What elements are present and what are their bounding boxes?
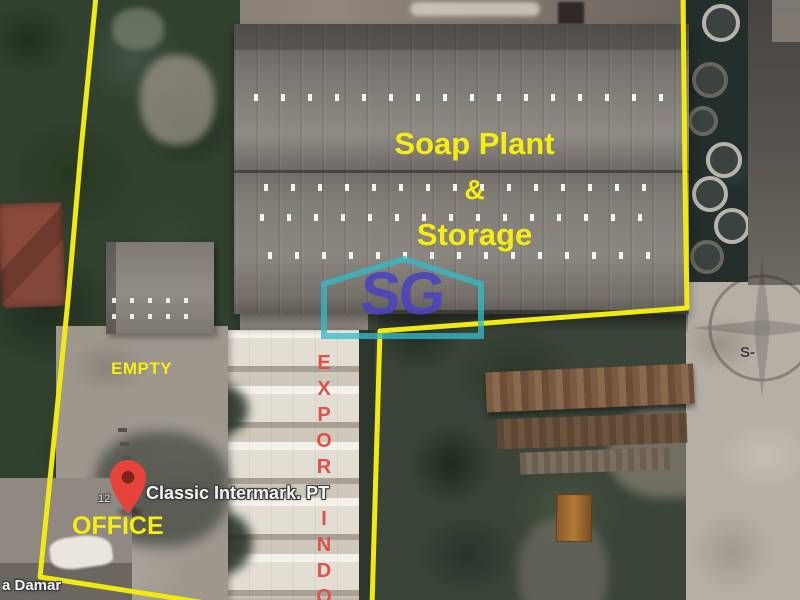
road-dark-patch (558, 2, 584, 24)
storage-tank (692, 62, 728, 98)
storage-tank (714, 208, 750, 244)
place-label[interactable]: Classic Intermark. PT (146, 483, 329, 504)
roof-band-right (748, 0, 800, 285)
sg-logo-watermark: SG (324, 264, 480, 324)
house-number-label: 12 (98, 493, 110, 505)
roof-ridge-line (234, 170, 689, 173)
trees-strip (359, 330, 375, 600)
roof-shading (234, 24, 689, 50)
storage-tank (702, 4, 740, 42)
yard-mark (120, 442, 129, 446)
label-ampersand: & (352, 176, 597, 204)
label-office: OFFICE (72, 514, 164, 539)
satellite-map[interactable]: SG Soap Plant & Storage EMPTY OFFICE EXP… (0, 0, 800, 600)
roof-vents-row (112, 298, 192, 303)
roof-vents-row (268, 252, 655, 259)
storage-tanks-strip (686, 0, 750, 282)
roof-light-patch (772, 0, 800, 42)
trees-clearing (112, 8, 164, 50)
storage-tank (692, 176, 728, 212)
roof-vents-row (112, 314, 192, 319)
label-soap-plant: Soap Plant (352, 128, 597, 159)
red-roof-building (0, 202, 66, 308)
gray-building (106, 242, 214, 334)
storage-tank (688, 106, 718, 136)
trees-clearing (140, 55, 215, 145)
road-light-patch (410, 2, 540, 16)
location-pin-icon[interactable] (110, 460, 146, 514)
label-exportindo: EXPORTINDO (314, 352, 334, 600)
label-storage: Storage (352, 219, 597, 250)
storage-tank (706, 142, 742, 178)
roof-vents-row (254, 94, 669, 101)
label-empty: EMPTY (111, 360, 172, 377)
roof-shading (106, 242, 116, 334)
compass-south-label: S- (740, 344, 755, 361)
street-label-partial: a Damar (2, 577, 92, 600)
storage-tank (690, 240, 724, 274)
orange-hut (556, 494, 593, 543)
ground-right (686, 280, 800, 600)
yard-mark (118, 428, 127, 432)
